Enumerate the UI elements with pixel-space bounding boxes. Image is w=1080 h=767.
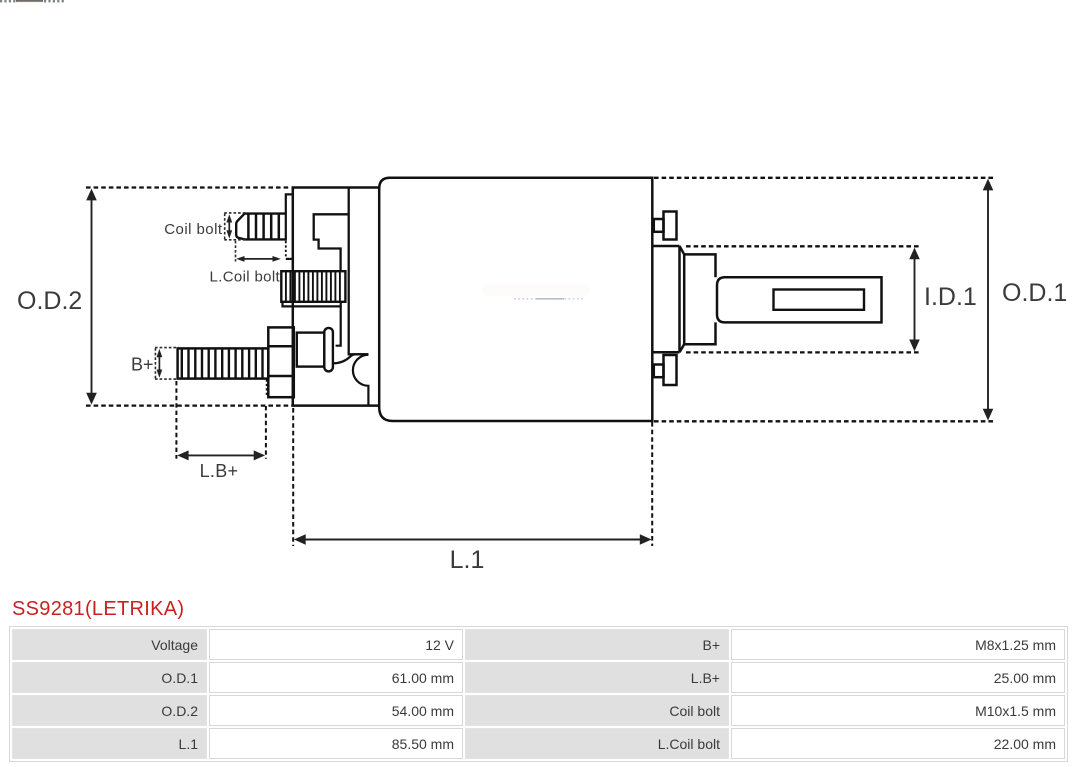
svg-text:Coil bolt: Coil bolt	[164, 221, 223, 238]
svg-text:O.D.2: O.D.2	[17, 287, 82, 315]
svg-text:L.1: L.1	[450, 546, 485, 574]
svg-text:L.B+: L.B+	[200, 461, 239, 481]
svg-text:B+: B+	[131, 355, 154, 375]
svg-text:I.D.1: I.D.1	[924, 283, 977, 311]
svg-text:O.D.1: O.D.1	[1002, 279, 1067, 307]
svg-text:L.Coil bolt: L.Coil bolt	[210, 269, 281, 286]
